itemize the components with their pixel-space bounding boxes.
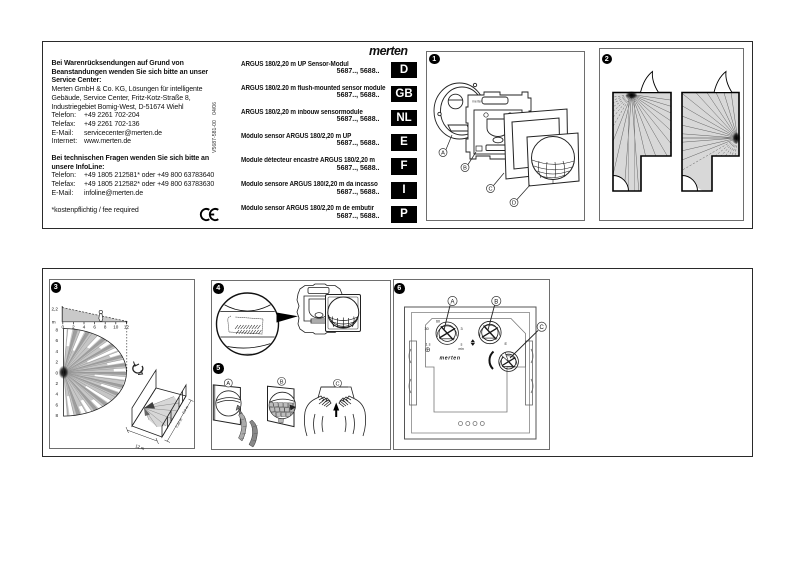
svg-text:min: min	[459, 347, 464, 351]
svg-text:3: 3	[461, 327, 463, 331]
svg-text:s: s	[461, 343, 463, 347]
svg-text:1 s: 1 s	[426, 343, 431, 347]
svg-text:C: C	[540, 325, 545, 331]
svg-text:60: 60	[436, 320, 440, 324]
svg-text:merten: merten	[440, 356, 461, 362]
svg-text:B: B	[494, 299, 498, 305]
svg-text:A: A	[450, 299, 454, 305]
svg-text:30: 30	[425, 327, 429, 331]
